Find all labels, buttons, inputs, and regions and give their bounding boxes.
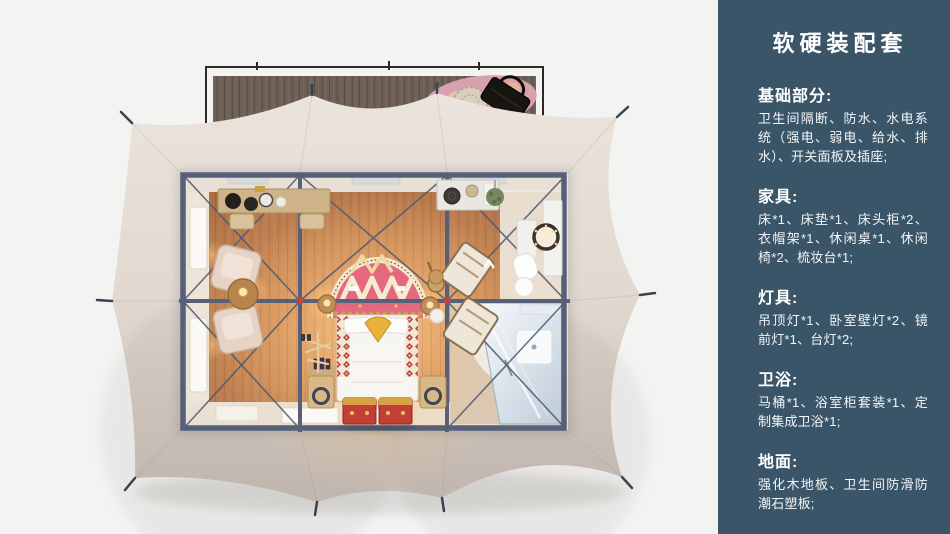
spec-section-basics: 基础部分: 卫生间隔断、防水、水电系统（强电、弱电、给水、排水）、开关面板及插座… bbox=[758, 82, 928, 166]
door-mat bbox=[216, 406, 258, 421]
page: 软硬装配套 基础部分: 卫生间隔断、防水、水电系统（强电、弱电、给水、排水）、开… bbox=[0, 0, 950, 534]
section-body: 马桶*1、浴室柜套装*1、定制集成卫浴*1; bbox=[758, 393, 928, 431]
section-heading: 卫浴: bbox=[758, 366, 928, 390]
section-body: 强化木地板、卫生间防滑防潮石塑板; bbox=[758, 475, 928, 513]
section-body: 吊顶灯*1、卧室壁灯*2、镜前灯*1、台灯*2; bbox=[758, 311, 928, 349]
spec-section-flooring: 地面: 强化木地板、卫生间防滑防潮石塑板; bbox=[758, 448, 928, 513]
clip-knob bbox=[435, 82, 439, 86]
stool bbox=[230, 214, 254, 229]
wash-basin bbox=[444, 188, 460, 204]
spec-section-furniture: 家具: 床*1、床垫*1、床头柜*2、衣帽架*1、休闲桌*1、休闲椅*2、梳妆台… bbox=[758, 183, 928, 267]
table-mirror bbox=[260, 194, 273, 207]
bedside-lamp bbox=[427, 302, 434, 309]
vanity-mirror bbox=[534, 225, 558, 249]
side-table bbox=[429, 270, 443, 284]
decorative-chest bbox=[379, 398, 412, 424]
duvet bbox=[352, 342, 403, 401]
section-heading: 灯具: bbox=[758, 284, 928, 308]
section-body: 卫生间隔断、防水、水电系统（强电、弱电、给水、排水）、开关面板及插座; bbox=[758, 109, 928, 166]
spec-sidebar: 软硬装配套 基础部分: 卫生间隔断、防水、水电系统（强电、弱电、给水、排水）、开… bbox=[718, 0, 950, 534]
section-body: 床*1、床垫*1、床头柜*2、衣帽架*1、休闲桌*1、休闲椅*2、梳妆台*1; bbox=[758, 210, 928, 267]
jewelry-box bbox=[255, 186, 265, 192]
frame-joint bbox=[297, 298, 303, 304]
hat bbox=[225, 193, 241, 209]
tent-floorplan-illustration bbox=[0, 0, 718, 534]
decorative-chest bbox=[343, 398, 376, 424]
bedside-lamp bbox=[324, 300, 331, 307]
stand-stool bbox=[308, 376, 334, 408]
frame-joint bbox=[444, 298, 450, 304]
window-mat bbox=[190, 318, 207, 392]
spec-section-lighting: 灯具: 吊顶灯*1、卧室壁灯*2、镜前灯*1、台灯*2; bbox=[758, 284, 928, 349]
armchair bbox=[212, 303, 264, 355]
stake-mid-left bbox=[97, 300, 112, 301]
bathroom-shelf bbox=[520, 305, 560, 314]
stool bbox=[300, 214, 324, 229]
spec-section-bathroom: 卫浴: 马桶*1、浴室柜套装*1、定制集成卫浴*1; bbox=[758, 366, 928, 431]
table-lamp bbox=[239, 288, 248, 297]
hat bbox=[244, 197, 258, 211]
floorplan-panel bbox=[0, 0, 718, 534]
side-table bbox=[430, 309, 444, 323]
section-heading: 地面: bbox=[758, 448, 928, 472]
window-mat bbox=[190, 207, 207, 269]
pouf bbox=[515, 278, 534, 297]
section-heading: 基础部分: bbox=[758, 82, 928, 106]
door-mat bbox=[282, 408, 338, 423]
stand-stool bbox=[420, 376, 446, 408]
sidebar-title: 软硬装配套 bbox=[752, 26, 928, 58]
bowl bbox=[466, 185, 478, 197]
slippers bbox=[301, 334, 305, 341]
shower-drain bbox=[532, 345, 537, 350]
clip-knob bbox=[310, 84, 314, 88]
section-heading: 家具: bbox=[758, 183, 928, 207]
dish bbox=[276, 197, 286, 207]
slippers bbox=[307, 334, 311, 341]
bed bbox=[337, 315, 418, 401]
